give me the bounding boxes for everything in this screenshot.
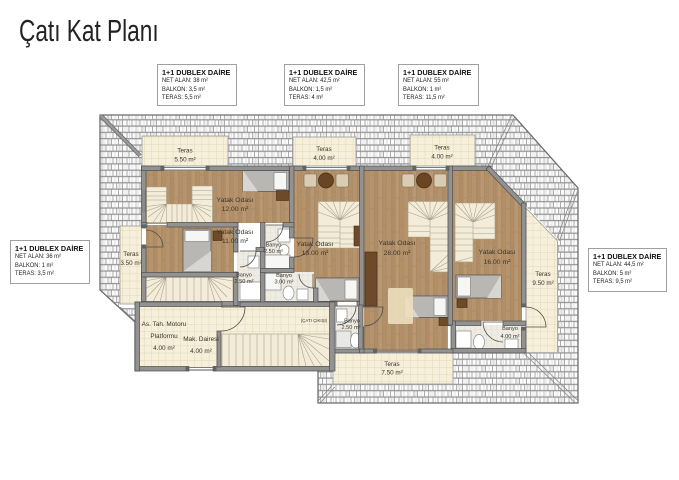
svg-text:Teras: Teras (384, 361, 399, 368)
svg-text:4.00 m²: 4.00 m² (190, 348, 212, 355)
svg-text:2.50 m²: 2.50 m² (342, 325, 361, 331)
svg-text:7.50 m²: 7.50 m² (381, 370, 402, 377)
svg-text:Yatak Odası: Yatak Odası (217, 197, 254, 204)
svg-text:Banyo: Banyo (266, 243, 282, 249)
svg-text:3.00 m²: 3.00 m² (275, 280, 294, 286)
svg-text:2.50 m²: 2.50 m² (235, 279, 254, 285)
svg-text:3.50 m²: 3.50 m² (120, 260, 141, 267)
svg-text:11.00 m²: 11.00 m² (222, 238, 249, 245)
svg-text:4.00 m²: 4.00 m² (153, 345, 175, 352)
svg-text:Teras: Teras (177, 148, 192, 155)
svg-text:Banyo: Banyo (236, 273, 252, 279)
svg-text:Teras: Teras (535, 271, 550, 278)
svg-text:16.00 m²: 16.00 m² (484, 259, 512, 266)
svg-text:28.00 m²: 28.00 m² (384, 250, 412, 257)
svg-text:Yatak Odası: Yatak Odası (379, 240, 416, 247)
svg-text:Platformu: Platformu (150, 333, 178, 340)
svg-text:Teras: Teras (434, 145, 449, 152)
svg-text:Banyo: Banyo (344, 319, 360, 325)
svg-text:Teras: Teras (123, 251, 138, 258)
svg-text:Yatak Odası: Yatak Odası (297, 241, 334, 248)
svg-text:4.00 m²: 4.00 m² (501, 334, 520, 340)
svg-text:Banyo: Banyo (276, 273, 292, 279)
svg-text:Mak. Dairesi: Mak. Dairesi (183, 336, 219, 343)
svg-text:2.50 m²: 2.50 m² (264, 249, 283, 255)
svg-text:(ÇATI ÇIKIŞI): (ÇATI ÇIKIŞI) (301, 318, 328, 323)
svg-text:Yatak Odası: Yatak Odası (479, 249, 516, 256)
svg-text:Yatak Odası: Yatak Odası (217, 229, 254, 236)
svg-text:9.50 m²: 9.50 m² (532, 280, 553, 287)
svg-text:4.00 m²: 4.00 m² (431, 154, 452, 161)
svg-text:As. Tah. Motoru: As. Tah. Motoru (142, 321, 187, 328)
svg-text:5.50 m²: 5.50 m² (174, 157, 195, 164)
svg-text:13.00 m²: 13.00 m² (302, 250, 330, 257)
svg-text:4.00 m²: 4.00 m² (313, 155, 334, 162)
svg-text:Banyo: Banyo (502, 326, 518, 332)
svg-text:12.00 m²: 12.00 m² (222, 206, 250, 213)
svg-text:Teras: Teras (316, 146, 331, 153)
